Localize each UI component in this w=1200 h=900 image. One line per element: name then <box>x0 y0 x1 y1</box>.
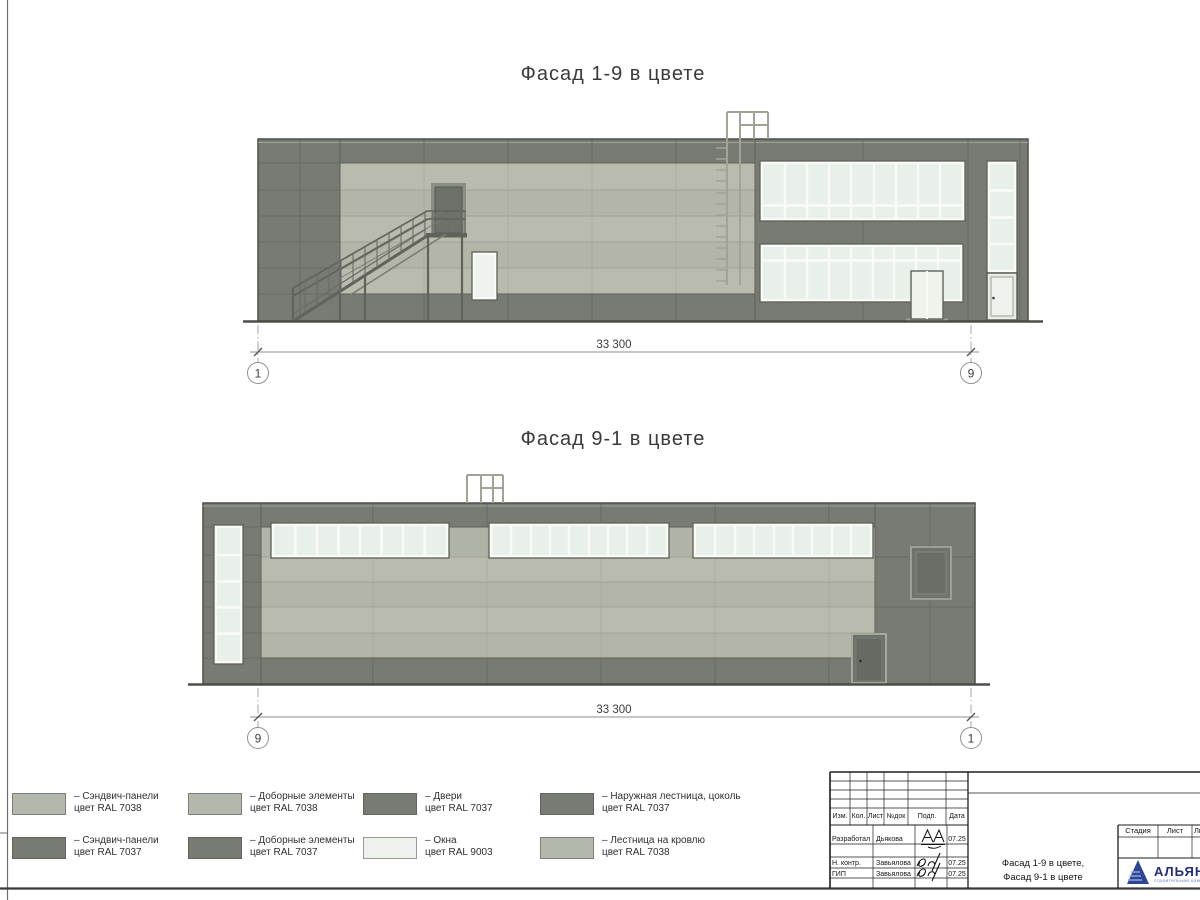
stage-sheet-header: Стадия Лист Листов <box>1125 826 1200 835</box>
svg-text:07.25: 07.25 <box>948 836 966 843</box>
roof-ladder-guard <box>467 475 503 503</box>
legend-label: – Сэндвич-панели <box>74 835 159 847</box>
company-subtitle: строительная компания <box>1154 879 1200 884</box>
corner-window-strip <box>987 161 1017 273</box>
legend-ral: цвет RAL 9003 <box>425 847 493 859</box>
dimension-bottom: 33 300 9 1 <box>248 688 982 749</box>
legend-label: – Двери <box>425 791 493 803</box>
color-swatch <box>188 793 242 815</box>
panel-field-light <box>340 139 755 321</box>
svg-text:Н. контр.: Н. контр. <box>832 860 861 867</box>
color-swatch <box>363 837 417 859</box>
title-block-header-row: Изм. Кол. Лист №док Подп. Дата <box>833 813 965 820</box>
legend-ral: цвет RAL 7038 <box>250 803 355 815</box>
dimension-value: 33 300 <box>596 339 631 351</box>
svg-text:Изм.: Изм. <box>833 813 848 820</box>
legend-label: – Окна <box>425 835 493 847</box>
framed-panel-window <box>911 547 951 599</box>
entrance-door <box>906 271 948 320</box>
svg-text:Подп.: Подп. <box>918 813 937 820</box>
legend-label: – Сэндвич-панели <box>74 791 159 803</box>
svg-text:Завьялова: Завьялова <box>876 860 911 867</box>
legend-ral: цвет RAL 7037 <box>74 847 159 859</box>
color-swatch <box>363 793 417 815</box>
legend-ral: цвет RAL 7037 <box>250 847 355 859</box>
ribbon-window-1 <box>271 523 449 558</box>
svg-text:Лист: Лист <box>868 813 884 820</box>
ribbon-window-upper <box>760 161 965 221</box>
color-swatch <box>12 837 66 859</box>
svg-text:Фасад 1-9 в цвете,: Фасад 1-9 в цвете, <box>1002 858 1084 869</box>
color-swatch <box>540 793 594 815</box>
svg-text:Кол.: Кол. <box>852 813 866 820</box>
legend-ral: цвет RAL 7037 <box>425 803 493 815</box>
color-swatch <box>12 793 66 815</box>
svg-text:Фасад 9-1 в цвете: Фасад 9-1 в цвете <box>1003 872 1083 883</box>
drawing-sheet: Фасад 1-9 в цвете <box>0 0 1200 900</box>
company-logo <box>1127 860 1149 884</box>
signature-developer <box>921 830 945 848</box>
color-swatch <box>540 837 594 859</box>
legend-ral: цвет RAL 7038 <box>602 847 705 859</box>
svg-text:Дата: Дата <box>949 813 965 820</box>
svg-text:07.25: 07.25 <box>948 871 966 878</box>
small-window <box>472 252 497 300</box>
sheet-frame <box>0 0 1200 900</box>
svg-text:Стадия: Стадия <box>1125 826 1151 835</box>
svg-text:Листов: Листов <box>1194 826 1200 835</box>
grid-axis-9: 9 <box>968 367 975 381</box>
legend-label: – Доборные элементы <box>250 791 355 803</box>
svg-text:Лист: Лист <box>1167 826 1184 835</box>
ribbon-window-2 <box>489 523 669 558</box>
color-swatch <box>188 837 242 859</box>
legend-ral: цвет RAL 7037 <box>602 803 741 815</box>
dimension-top: 33 300 1 9 <box>248 325 982 384</box>
corner-door <box>987 273 1017 320</box>
grid-axis-1: 1 <box>255 367 262 381</box>
legend-label: – Доборные элементы <box>250 835 355 847</box>
legend-ral: цвет RAL 7038 <box>74 803 159 815</box>
svg-text:Разработал: Разработал <box>832 835 870 843</box>
dimension-value: 33 300 <box>596 704 631 716</box>
document-title: Фасад 1-9 в цвете, Фасад 9-1 в цвете <box>1002 858 1084 883</box>
grid-axis-9: 9 <box>255 732 262 746</box>
drawing-canvas: Фасад 1-9 в цвете <box>0 0 1200 900</box>
svg-text:07.25: 07.25 <box>948 860 966 867</box>
ribbon-window-3 <box>693 523 873 558</box>
left-window-strip <box>214 525 243 664</box>
facade-bottom-title: Фасад 9-1 в цвете <box>521 428 706 450</box>
legend-label: – Наружная лестница, цоколь <box>602 791 741 803</box>
signature-rows: Разработал Дьякова 07.25 Н. контр. Завья… <box>832 830 966 881</box>
facade-9-1: Фасад 9-1 в цвете <box>188 428 990 749</box>
company-name: АЛЬЯНС <box>1154 864 1200 879</box>
grid-axis-1: 1 <box>968 732 975 746</box>
svg-text:Завьялова: Завьялова <box>876 871 911 878</box>
svg-text:№док: №док <box>887 813 906 820</box>
legend-label: – Лестница на кровлю <box>602 835 705 847</box>
title-block: Изм. Кол. Лист №док Подп. Дата Разработа… <box>830 772 1200 888</box>
back-door <box>852 634 886 683</box>
svg-text:ГИП: ГИП <box>832 871 846 878</box>
color-legend: – Сэндвич-панелицвет RAL 7038 – Сэндвич-… <box>0 0 830 120</box>
svg-text:Дьякова: Дьякова <box>876 836 903 843</box>
